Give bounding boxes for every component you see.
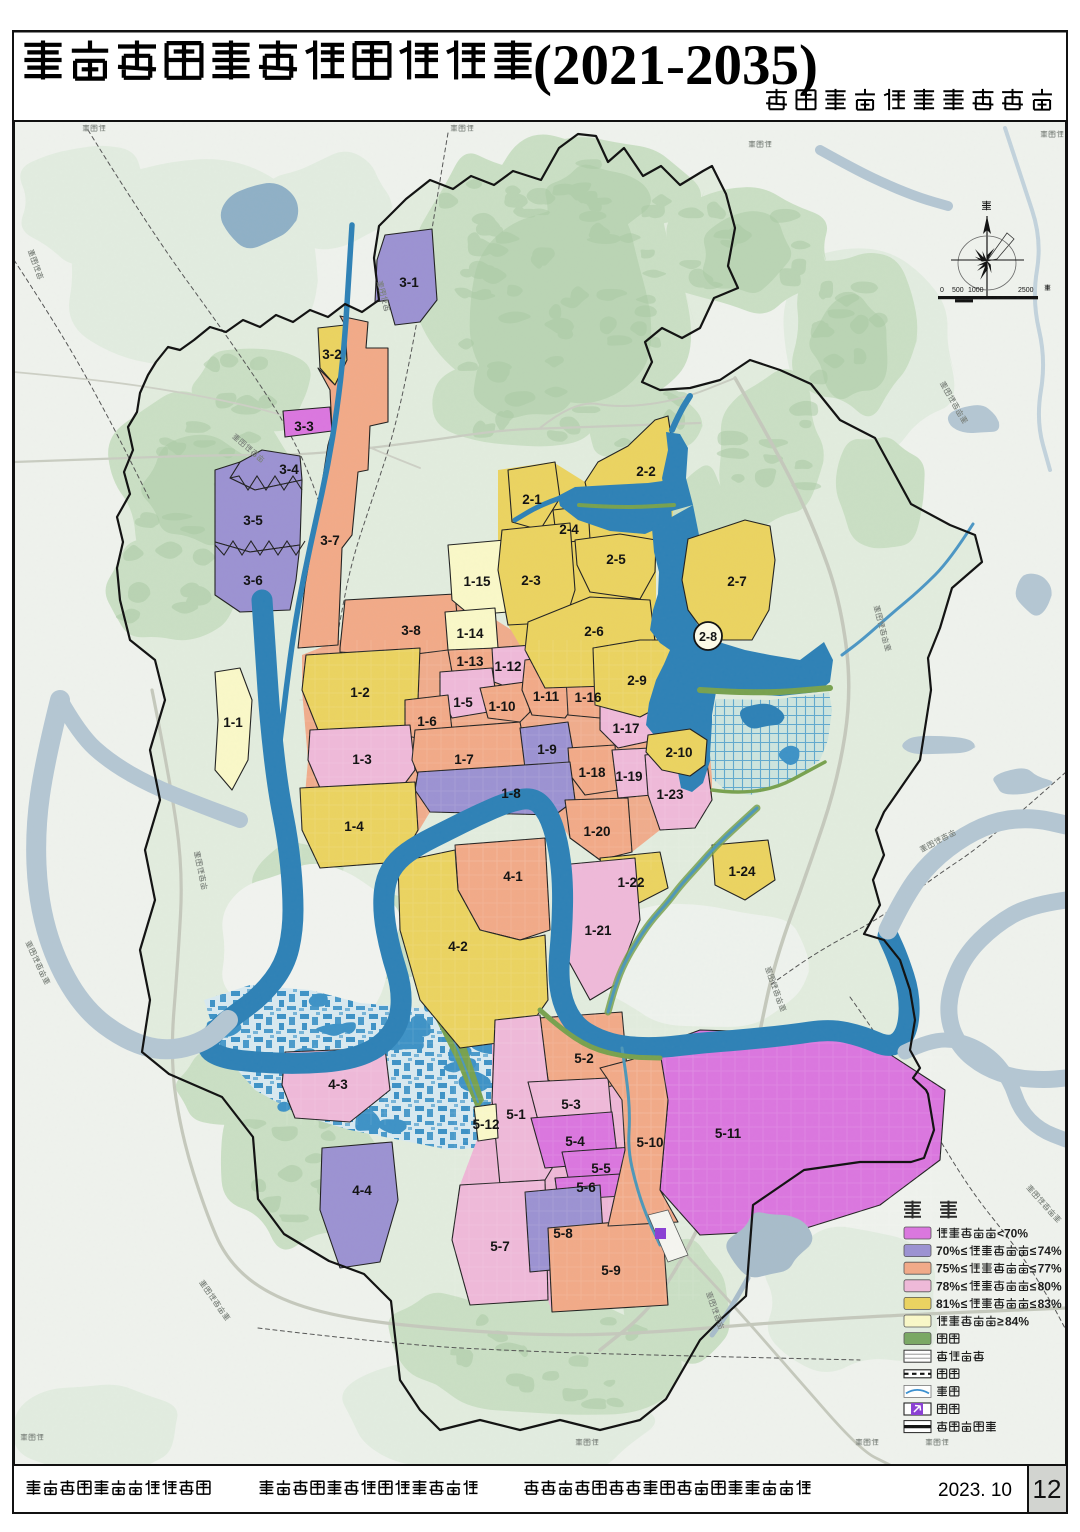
- svg-text:2023. 10: 2023. 10: [938, 1480, 1012, 1501]
- svg-text:(2021-2035): (2021-2035): [533, 34, 818, 97]
- svg-text:12: 12: [1033, 1474, 1062, 1504]
